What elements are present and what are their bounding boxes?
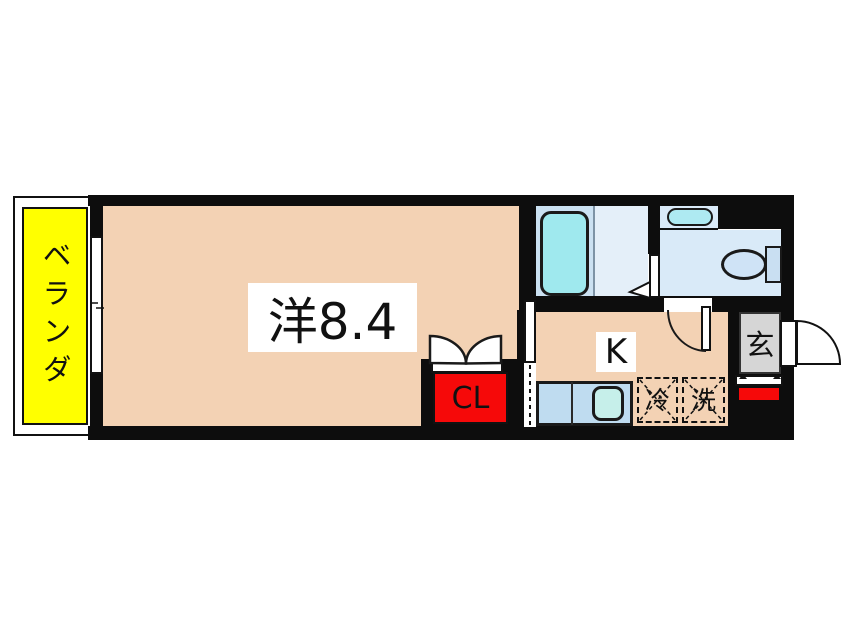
- toilet-door-leaf: [701, 306, 711, 351]
- balcony-label: ベランダ: [34, 240, 76, 392]
- western-room-label-box: 洋8.4: [248, 283, 417, 352]
- balcony-window: [90, 236, 103, 374]
- wall-room-bath-divider: [519, 195, 536, 300]
- entrance-step-red: [739, 388, 779, 400]
- kitchen-label: K: [605, 332, 627, 372]
- washing-machine-label: 洗: [690, 388, 717, 413]
- washing-machine-space: 洗: [682, 377, 725, 423]
- bathroom-floor-right: [593, 206, 648, 298]
- wall-top-right-block: [718, 206, 794, 229]
- entrance-door-leaf: [780, 320, 797, 367]
- entrance-door-arc: [797, 321, 840, 364]
- toilet-bowl: [721, 249, 767, 280]
- bathroom-door: [649, 254, 660, 298]
- sliding-door-panel: [524, 300, 536, 363]
- wall-mid-horizontal: [519, 296, 794, 312]
- entrance-step: [735, 375, 783, 386]
- balcony: ベランダ: [22, 207, 88, 425]
- kitchen-sink: [592, 386, 624, 421]
- refrigerator-space: 冷: [637, 377, 678, 423]
- sliding-door-track: [524, 363, 536, 427]
- refrigerator-label: 冷: [644, 388, 671, 413]
- closet-label: CL: [452, 381, 490, 416]
- floorplan-canvas: ベランダ 冷 洗 玄 CL: [0, 0, 846, 634]
- wall-bath-toilet: [648, 206, 660, 254]
- toilet-tank: [765, 246, 782, 283]
- wall-top: [88, 195, 794, 206]
- kitchen-counter-divider: [571, 382, 573, 425]
- bathtub: [540, 211, 589, 296]
- wall-bottom: [88, 426, 794, 440]
- kitchen-label-box: K: [596, 332, 636, 372]
- entrance-area: 玄: [739, 312, 781, 374]
- western-room-label: 洋8.4: [268, 282, 398, 354]
- closet: CL: [433, 372, 508, 424]
- entrance-label: 玄: [745, 322, 774, 364]
- toilet-sink: [667, 208, 713, 226]
